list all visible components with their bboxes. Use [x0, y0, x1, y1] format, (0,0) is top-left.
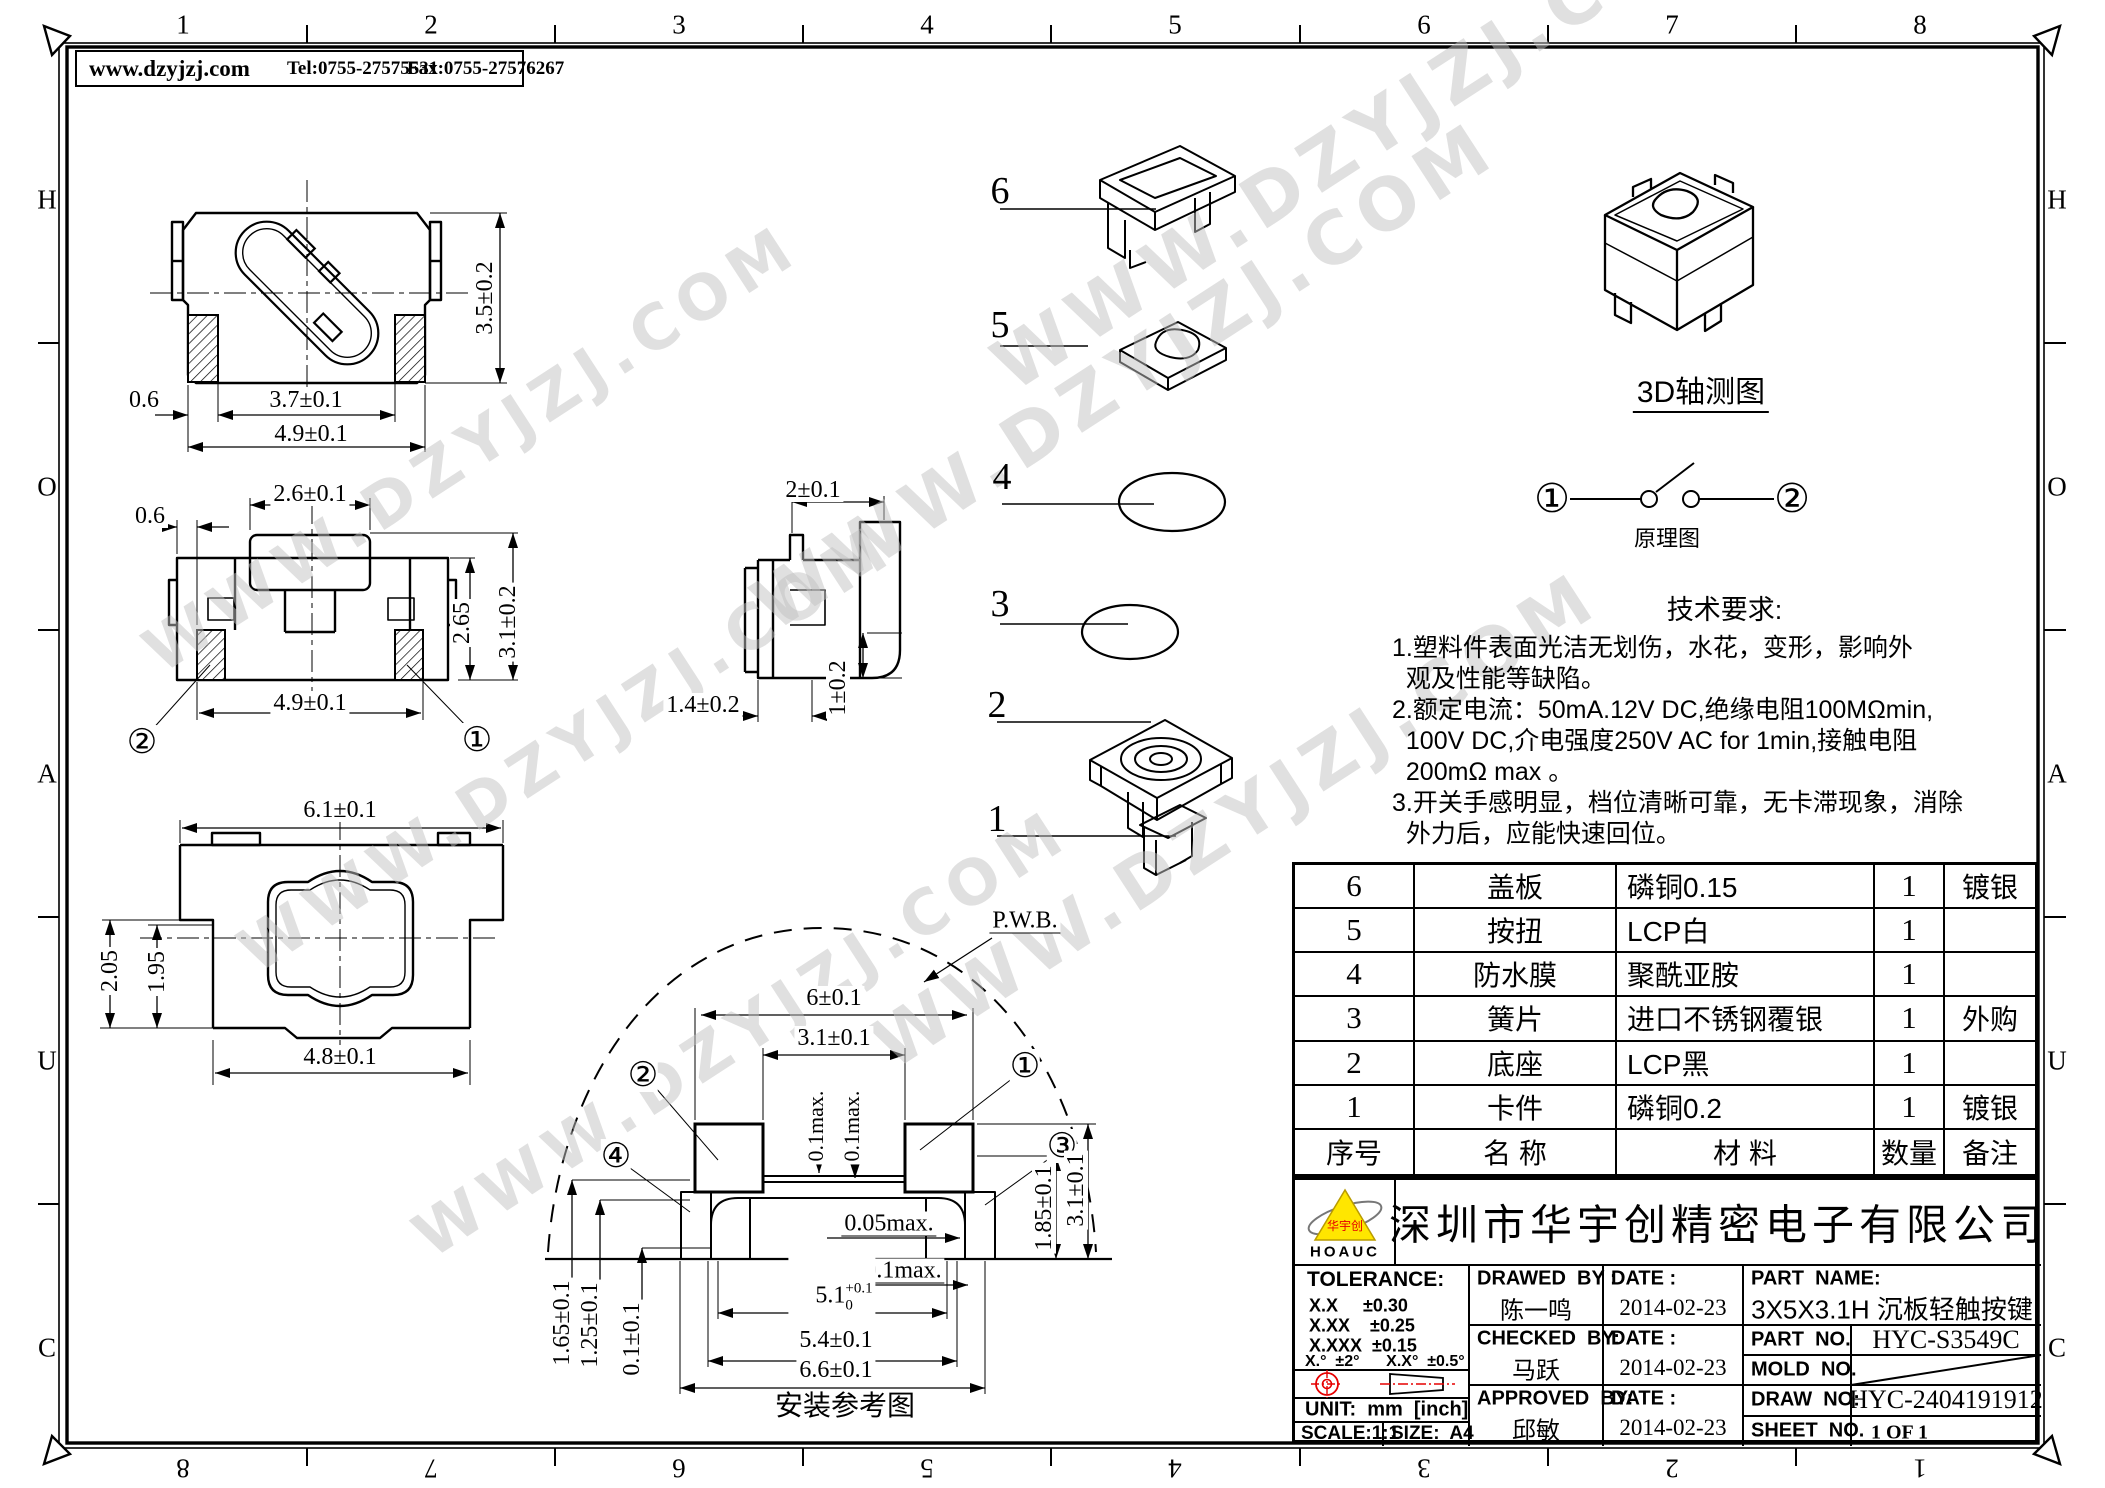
- bom-material: LCP白: [1617, 909, 1875, 951]
- sheet-no-value: 1 OF 1: [1871, 1422, 1928, 1445]
- dim-front-offset: 0.6: [132, 504, 168, 528]
- draw-no-value: HYC-2404191912: [1849, 1385, 2043, 1415]
- zone-row-l3: A: [37, 761, 57, 788]
- zone-col-b5: 5: [920, 1455, 934, 1482]
- table-row: 2 底座 LCP黑 1: [1295, 1042, 2035, 1086]
- bom-remark: 镀银: [1945, 1086, 2035, 1128]
- iso-view-drawing: [1555, 145, 1795, 375]
- dim-install-w3: 5.1+0.10: [788, 1257, 875, 1338]
- tech-line: 3.开关手感明显，档位清晰可靠，无卡滞现象，消除: [1392, 788, 2057, 819]
- bom-no: 4: [1295, 953, 1415, 995]
- tolerance-1: X.X ±0.30: [1309, 1296, 1408, 1317]
- zone-col-b3: 3: [1417, 1455, 1431, 1482]
- dim-install-h1: 1.85±0.1: [1032, 1162, 1056, 1253]
- zone-row-l5: C: [38, 1335, 56, 1362]
- drawed-by-label: DRAWED BY :: [1477, 1268, 1617, 1291]
- tech-line: 1.塑料件表面光洁无划伤，水花，变形，影响外: [1392, 633, 2057, 664]
- bom-header-material: 材 料: [1617, 1130, 1875, 1174]
- bom-no: 5: [1295, 909, 1415, 951]
- dim-top-outer: 4.9±0.1: [271, 422, 350, 446]
- zone-col-5: 5: [1168, 12, 1182, 39]
- table-row: 1 卡件 磷铜0.2 1 镀银: [1295, 1086, 2035, 1130]
- company-name: 深圳市华宇创精密电子有限公司: [1389, 1192, 2047, 1253]
- unit-label: UNIT: mm [inch]: [1305, 1399, 1468, 1422]
- zone-col-2: 2: [424, 12, 438, 39]
- bom-material: 磷铜0.15: [1617, 865, 1875, 907]
- zone-row-r4: U: [2047, 1048, 2067, 1075]
- bom-remark: 外购: [1945, 997, 2035, 1039]
- bom-header-remark: 备注: [1945, 1130, 2035, 1174]
- exploded-item-1: 1: [988, 800, 1007, 838]
- zone-row-r2: O: [2047, 474, 2067, 501]
- exploded-item-6: 6: [991, 172, 1010, 210]
- dim-front-button: 2.6±0.1: [270, 482, 349, 506]
- dim-install-w3-sub: 0: [845, 1297, 872, 1314]
- dim-install-gap2: 0.1max.: [841, 1088, 863, 1165]
- part-no-value: HYC-S3549C: [1872, 1325, 2019, 1355]
- exploded-item-3: 3: [991, 585, 1010, 623]
- date-value-2: 2014-02-23: [1619, 1355, 1726, 1381]
- bom-name: 卡件: [1415, 1086, 1617, 1128]
- scale-label: SCALE:1:1: [1301, 1423, 1399, 1445]
- checked-by-label: CHECKED BY:: [1477, 1328, 1620, 1351]
- tolerance-angle: X.° ±2° X.X° ±0.5°: [1305, 1353, 1465, 1371]
- part-name-value: 3X5X3.1H 沉板轻触按键: [1751, 1290, 2033, 1327]
- zone-col-7: 7: [1665, 12, 1679, 39]
- part-spring: [1082, 605, 1178, 659]
- zone-col-b4: 4: [1168, 1455, 1182, 1482]
- date-value-1: 2014-02-23: [1619, 1295, 1726, 1321]
- part-no-label: PART NO.: [1751, 1329, 1851, 1352]
- bom-header-no: 序号: [1295, 1130, 1415, 1174]
- bom-qty: 1: [1875, 865, 1945, 907]
- zone-col-1: 1: [176, 12, 190, 39]
- schematic-node-2: ②: [1774, 479, 1810, 519]
- projection-symbol-icon: [1295, 1370, 1469, 1398]
- bom-qty: 1: [1875, 1042, 1945, 1084]
- tech-line: 100V DC,介电强度250V AC for 1min,接触电阻: [1392, 726, 2057, 757]
- bom-qty: 1: [1875, 997, 1945, 1039]
- checked-by-name: 马跃: [1512, 1351, 1560, 1386]
- dim-install-w5: 6.6±0.1: [796, 1358, 875, 1382]
- bom-name: 盖板: [1415, 865, 1617, 907]
- dim-install-w3-sup: +0.1: [845, 1281, 872, 1298]
- dim-install-w4: 5.4±0.1: [796, 1328, 875, 1352]
- install-ref-1: ①: [1010, 1049, 1040, 1083]
- approved-by-name: 邱敏: [1512, 1411, 1560, 1446]
- dim-install-w1: 6±0.1: [803, 986, 864, 1010]
- exploded-item-5: 5: [991, 306, 1010, 344]
- dim-install-w3-main: 5.1: [815, 1283, 845, 1309]
- tech-requirements: 技术要求: 1.塑料件表面光洁无划伤，水花，变形，影响外 观及性能等缺陷。 2.…: [1392, 588, 2057, 850]
- dim-side-bottom: 1.4±0.2: [663, 693, 742, 717]
- dim-install-h2: 3.1±0.1: [1064, 1150, 1088, 1229]
- dim-side-top: 2±0.1: [782, 478, 843, 502]
- table-header-row: 序号 名 称 材 料 数量 备注: [1295, 1130, 2035, 1174]
- dim-bottom-h1: 2.05: [98, 947, 122, 995]
- bom-remark: 镀银: [1945, 865, 2035, 907]
- tech-line: 2.额定电流：50mA.12V DC,绝缘电阻100MΩmin,: [1392, 695, 2057, 726]
- exploded-item-4: 4: [993, 458, 1012, 496]
- zone-row-l2: O: [37, 474, 57, 501]
- dim-install-h4: 1.25±0.1: [578, 1279, 602, 1370]
- dim-top-inner: 3.7±0.1: [266, 388, 345, 412]
- company-logo-text: HOAUC: [1310, 1244, 1380, 1261]
- dim-install-w2: 3.1±0.1: [794, 1026, 873, 1050]
- bom-no: 3: [1295, 997, 1415, 1039]
- dim-top-height: 3.5±0.2: [473, 258, 497, 337]
- dim-bottom-h2: 1.95: [145, 948, 169, 996]
- schematic-node-1: ①: [1534, 479, 1570, 519]
- bom-no: 1: [1295, 1086, 1415, 1128]
- zone-row-l1: H: [37, 187, 57, 214]
- zone-row-l4: U: [37, 1048, 57, 1075]
- schematic-label: 原理图: [1634, 521, 1700, 553]
- bom-no: 2: [1295, 1042, 1415, 1084]
- bom-material: LCP黑: [1617, 1042, 1875, 1084]
- zone-row-r5: C: [2048, 1335, 2066, 1362]
- zone-col-b1: 1: [1913, 1455, 1927, 1482]
- svg-text:华宇创: 华宇创: [1327, 1219, 1363, 1233]
- title-block: 华宇创 HOAUC 深圳市华宇创精密电子有限公司 TOLERANCE: X.X …: [1292, 1177, 2038, 1443]
- bom-remark: [1945, 1042, 2035, 1084]
- bom-qty: 1: [1875, 953, 1945, 995]
- install-caption: 安装参考图: [775, 1384, 915, 1424]
- zone-col-4: 4: [920, 12, 934, 39]
- table-row: 4 防水膜 聚酰亚胺 1: [1295, 953, 2035, 997]
- dim-bottom-bottom: 4.8±0.1: [300, 1045, 379, 1069]
- tech-line: 观及性能等缺陷。: [1392, 664, 2057, 695]
- dim-side-height: 1±0.2: [826, 657, 850, 718]
- tolerance-title: TOLERANCE:: [1307, 1268, 1444, 1292]
- bom-material: 进口不锈钢覆银: [1617, 997, 1875, 1039]
- drawing-sheet: 1 2 3 4 5 6 7 8 8 7 6 5 4 3 2 1 H O A U …: [0, 0, 2105, 1488]
- bom-material: 磷铜0.2: [1617, 1086, 1875, 1128]
- tech-line: 200mΩ max 。: [1392, 757, 2057, 788]
- approved-by-label: APPROVED BY:: [1477, 1388, 1633, 1411]
- exploded-item-2: 2: [988, 686, 1007, 724]
- dim-install-gap3: 0.05max.: [841, 1212, 936, 1237]
- dim-front-totalh: 3.1±0.2: [496, 582, 520, 661]
- dim-front-width: 4.9±0.1: [270, 691, 349, 715]
- zone-col-b2: 2: [1665, 1455, 1679, 1482]
- zone-col-b6: 6: [672, 1455, 686, 1482]
- dim-front-bodyh: 2.65: [450, 599, 474, 647]
- tolerance-2: X.XX ±0.25: [1309, 1316, 1415, 1337]
- dim-install-gap1: 0.1max.: [805, 1088, 827, 1165]
- install-ref-2: ②: [628, 1058, 658, 1092]
- company-logo: 华宇创: [1305, 1186, 1385, 1244]
- date-label-1: DATE :: [1611, 1268, 1676, 1291]
- ref-bubble-2: ②: [127, 725, 157, 759]
- table-row: 5 按扭 LCP白 1: [1295, 909, 2035, 953]
- bom-name: 按扭: [1415, 909, 1617, 951]
- date-value-3: 2014-02-23: [1619, 1415, 1726, 1441]
- dim-install-h5: 0.1±0.1: [620, 1299, 644, 1378]
- bom-qty: 1: [1875, 1086, 1945, 1128]
- iso-view-label: 3D轴测图: [1633, 367, 1769, 413]
- draw-no-label: DRAW NO:: [1751, 1389, 1860, 1412]
- zone-col-6: 6: [1417, 12, 1431, 39]
- date-label-2: DATE :: [1611, 1328, 1676, 1351]
- size-label: SIZE: A4: [1391, 1423, 1474, 1445]
- tech-title: 技术要求:: [1392, 588, 2057, 627]
- zone-col-b7: 7: [424, 1455, 438, 1482]
- bom-name: 防水膜: [1415, 953, 1617, 995]
- install-ref-4: ④: [601, 1139, 631, 1173]
- table-row: 3 簧片 进口不锈钢覆银 1 外购: [1295, 997, 2035, 1041]
- zone-col-3: 3: [672, 12, 686, 39]
- date-label-3: DATE :: [1611, 1388, 1676, 1411]
- bom-material: 聚酰亚胺: [1617, 953, 1875, 995]
- bom-no: 6: [1295, 865, 1415, 907]
- bom-remark: [1945, 953, 2035, 995]
- zone-col-8: 8: [1913, 12, 1927, 39]
- bom-header-qty: 数量: [1875, 1130, 1945, 1174]
- bom-name: 底座: [1415, 1042, 1617, 1084]
- bom-remark: [1945, 909, 2035, 951]
- part-film: [1119, 473, 1225, 531]
- actuator-button: [223, 205, 396, 378]
- dim-install-h3: 1.65±0.1: [550, 1277, 574, 1368]
- tech-line: 外力后，应能快速回位。: [1392, 819, 2057, 850]
- bom-qty: 1: [1875, 909, 1945, 951]
- mold-no-label: MOLD NO.: [1751, 1359, 1857, 1382]
- dim-top-pad: 0.6: [126, 388, 162, 412]
- zone-row-r1: H: [2047, 187, 2067, 214]
- vendor-contact-box: www.dzyjzj.com Tel:0755-27575531 Fax:075…: [75, 50, 524, 87]
- part-name-label: PART NAME:: [1751, 1268, 1881, 1291]
- install-pwb-label: P.W.B.: [989, 909, 1060, 934]
- zone-col-b8: 8: [176, 1455, 190, 1482]
- drawed-by-name: 陈一鸣: [1500, 1291, 1572, 1326]
- ref-bubble-1: ①: [462, 723, 492, 757]
- bom-table: 6 盖板 磷铜0.15 1 镀银 5 按扭 LCP白 1 4 防水膜 聚酰亚胺 …: [1292, 862, 2038, 1177]
- table-row: 6 盖板 磷铜0.15 1 镀银: [1295, 865, 2035, 909]
- bom-name: 簧片: [1415, 997, 1617, 1039]
- vendor-fax: Fax:0755-27576267: [407, 58, 564, 80]
- sheet-no-label: SHEET NO.: [1751, 1420, 1864, 1443]
- vendor-website: www.dzyjzj.com: [89, 56, 250, 82]
- dim-bottom-width: 6.1±0.1: [300, 798, 379, 822]
- bom-header-name: 名 称: [1415, 1130, 1617, 1174]
